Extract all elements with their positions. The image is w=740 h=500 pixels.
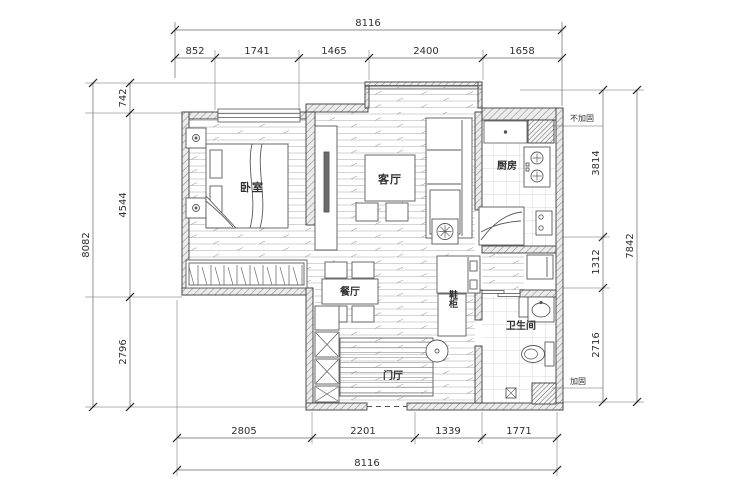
entry-mat (340, 338, 433, 396)
round-stool (426, 340, 448, 362)
dim-right-total: 7842 (625, 233, 636, 258)
hall-cabinet (315, 306, 339, 330)
dim-right-seg-1: 1312 (591, 249, 602, 274)
chair (325, 262, 347, 278)
dim-top-seg-0: 852 (185, 46, 204, 57)
bedroom-window (218, 109, 300, 122)
chair (352, 306, 374, 322)
dim-left-seg-1: 4544 (118, 192, 129, 217)
dim-left-total: 8082 (81, 232, 92, 257)
dim-left-seg-0: 742 (118, 88, 129, 107)
dim-top-seg-4: 1658 (509, 46, 534, 57)
annotation-not-reinforced: 不加固 (570, 113, 594, 123)
chair (352, 262, 374, 278)
dim-right-seg-0: 3814 (591, 150, 602, 175)
label-shoe-cabinet: 鞋柜 (447, 289, 459, 309)
kitchen-fixture (536, 211, 552, 235)
dim-bottom-seg-3: 1771 (506, 426, 531, 437)
dim-left-seg-2: 2796 (118, 339, 129, 364)
stool (386, 203, 408, 221)
dim-bottom-total: 8116 (354, 458, 379, 469)
room-label-bathroom: 卫生间 (506, 319, 536, 332)
stool (356, 203, 378, 221)
toilet (522, 346, 545, 363)
dim-bottom-seg-0: 2805 (231, 426, 256, 437)
dim-top-seg-3: 2400 (413, 46, 438, 57)
dim-top-seg-1: 1741 (244, 46, 269, 57)
floor-plan-page: 8116 852 1741 1465 2400 1658 8116 2805 2… (0, 0, 740, 500)
tv (324, 152, 329, 212)
bathroom-sliding-door (482, 291, 504, 294)
washing-machine (527, 255, 553, 279)
dim-bottom-seg-2: 1339 (435, 426, 460, 437)
dim-top-seg-2: 1465 (321, 46, 346, 57)
floor-plan-svg: 8116 852 1741 1465 2400 1658 8116 2805 2… (0, 0, 740, 500)
room-label-kitchen: 厨房 (497, 159, 517, 172)
room-label-bedroom: 卧室 (240, 180, 264, 194)
dim-top-total: 8116 (355, 18, 380, 29)
corner-reinforced (532, 383, 556, 404)
toilet-tank (545, 342, 554, 366)
annotation-reinforced: 加固 (570, 376, 586, 386)
entry-door (367, 403, 407, 410)
room-label-living: 客厅 (377, 172, 402, 186)
room-label-dining: 餐厅 (339, 285, 360, 298)
room-label-entry-hall: 门厅 (383, 369, 403, 382)
corner-not-reinforced (528, 120, 554, 143)
dim-right-seg-2: 2716 (591, 332, 602, 357)
bath-shelf (519, 297, 528, 317)
dim-bottom-seg-1: 2201 (350, 426, 375, 437)
stove (524, 147, 550, 187)
